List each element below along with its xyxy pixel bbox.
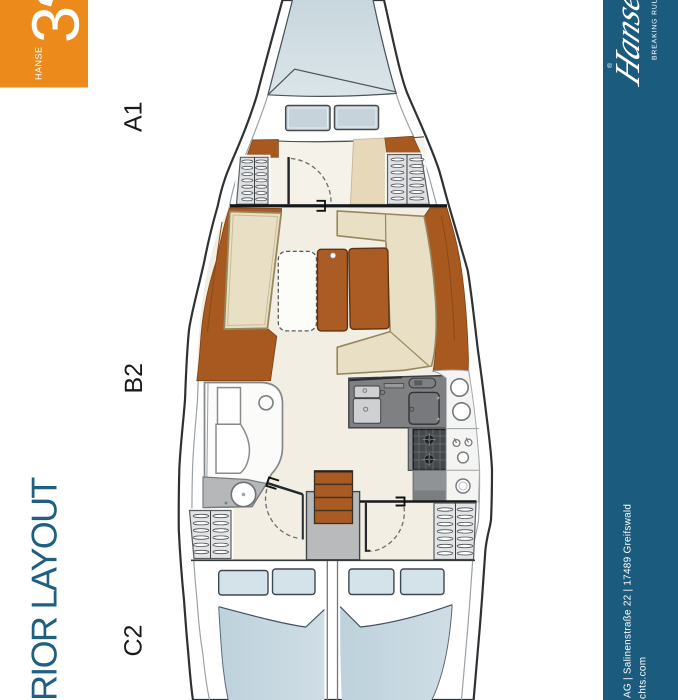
- svg-text:3: 3: [19, 6, 94, 43]
- svg-text:BREAKING RULES: BREAKING RULES: [652, 0, 659, 60]
- svg-text:chts.com: chts.com: [638, 657, 649, 699]
- svg-text:HANSE: HANSE: [34, 46, 44, 80]
- svg-text:®: ®: [607, 62, 614, 68]
- svg-text:C2: C2: [120, 625, 148, 657]
- svg-text:A1: A1: [120, 101, 148, 132]
- svg-text:B2: B2: [120, 363, 148, 394]
- svg-text:RIOR LAYOUT: RIOR LAYOUT: [24, 477, 65, 700]
- svg-text:AG | Salinenstraße 22 | 17489: AG | Salinenstraße 22 | 17489 Greifswald: [623, 504, 634, 698]
